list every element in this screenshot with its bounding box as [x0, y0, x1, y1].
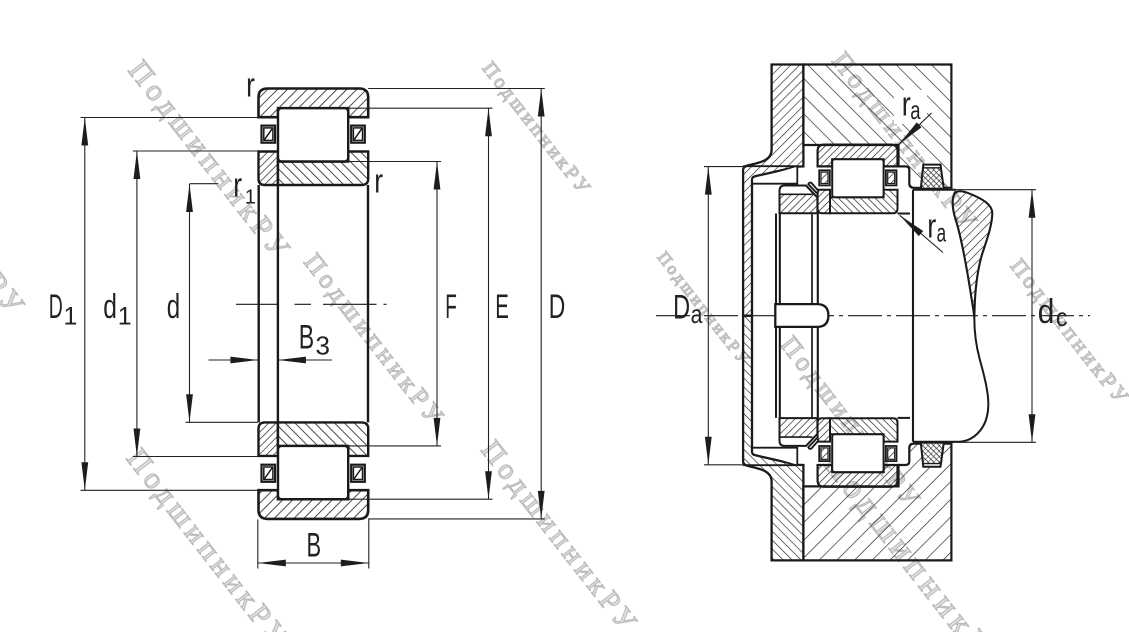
svg-text:r: r [374, 163, 383, 201]
svg-text:ПодшипникРУ: ПодшипникРУ [0, 111, 33, 324]
svg-text:1: 1 [64, 303, 78, 331]
svg-text:F: F [445, 288, 457, 326]
svg-text:B: B [307, 526, 322, 564]
svg-text:ПодшипникРУ: ПодшипникРУ [474, 435, 645, 632]
svg-text:B: B [299, 319, 314, 357]
svg-text:r: r [927, 208, 936, 246]
svg-text:r: r [246, 66, 255, 104]
svg-text:a: a [937, 218, 947, 248]
svg-text:3: 3 [316, 331, 330, 361]
svg-text:a: a [910, 95, 921, 125]
svg-text:E: E [495, 288, 509, 326]
svg-text:r: r [233, 167, 242, 205]
svg-text:1: 1 [245, 187, 256, 209]
svg-text:ПодшипникРУ: ПодшипникРУ [1006, 254, 1129, 411]
svg-text:d: d [167, 288, 180, 326]
svg-text:D: D [549, 288, 566, 326]
svg-text:1: 1 [118, 303, 132, 331]
svg-text:D: D [49, 288, 63, 326]
svg-text:c: c [1056, 302, 1067, 332]
svg-text:d: d [103, 288, 117, 326]
svg-text:ПодшипникРУ: ПодшипникРУ [654, 248, 755, 370]
svg-text:D: D [673, 289, 690, 327]
svg-text:d: d [1038, 293, 1055, 331]
svg-text:a: a [691, 299, 703, 329]
svg-text:ПодшипникРУ: ПодшипникРУ [478, 58, 596, 201]
